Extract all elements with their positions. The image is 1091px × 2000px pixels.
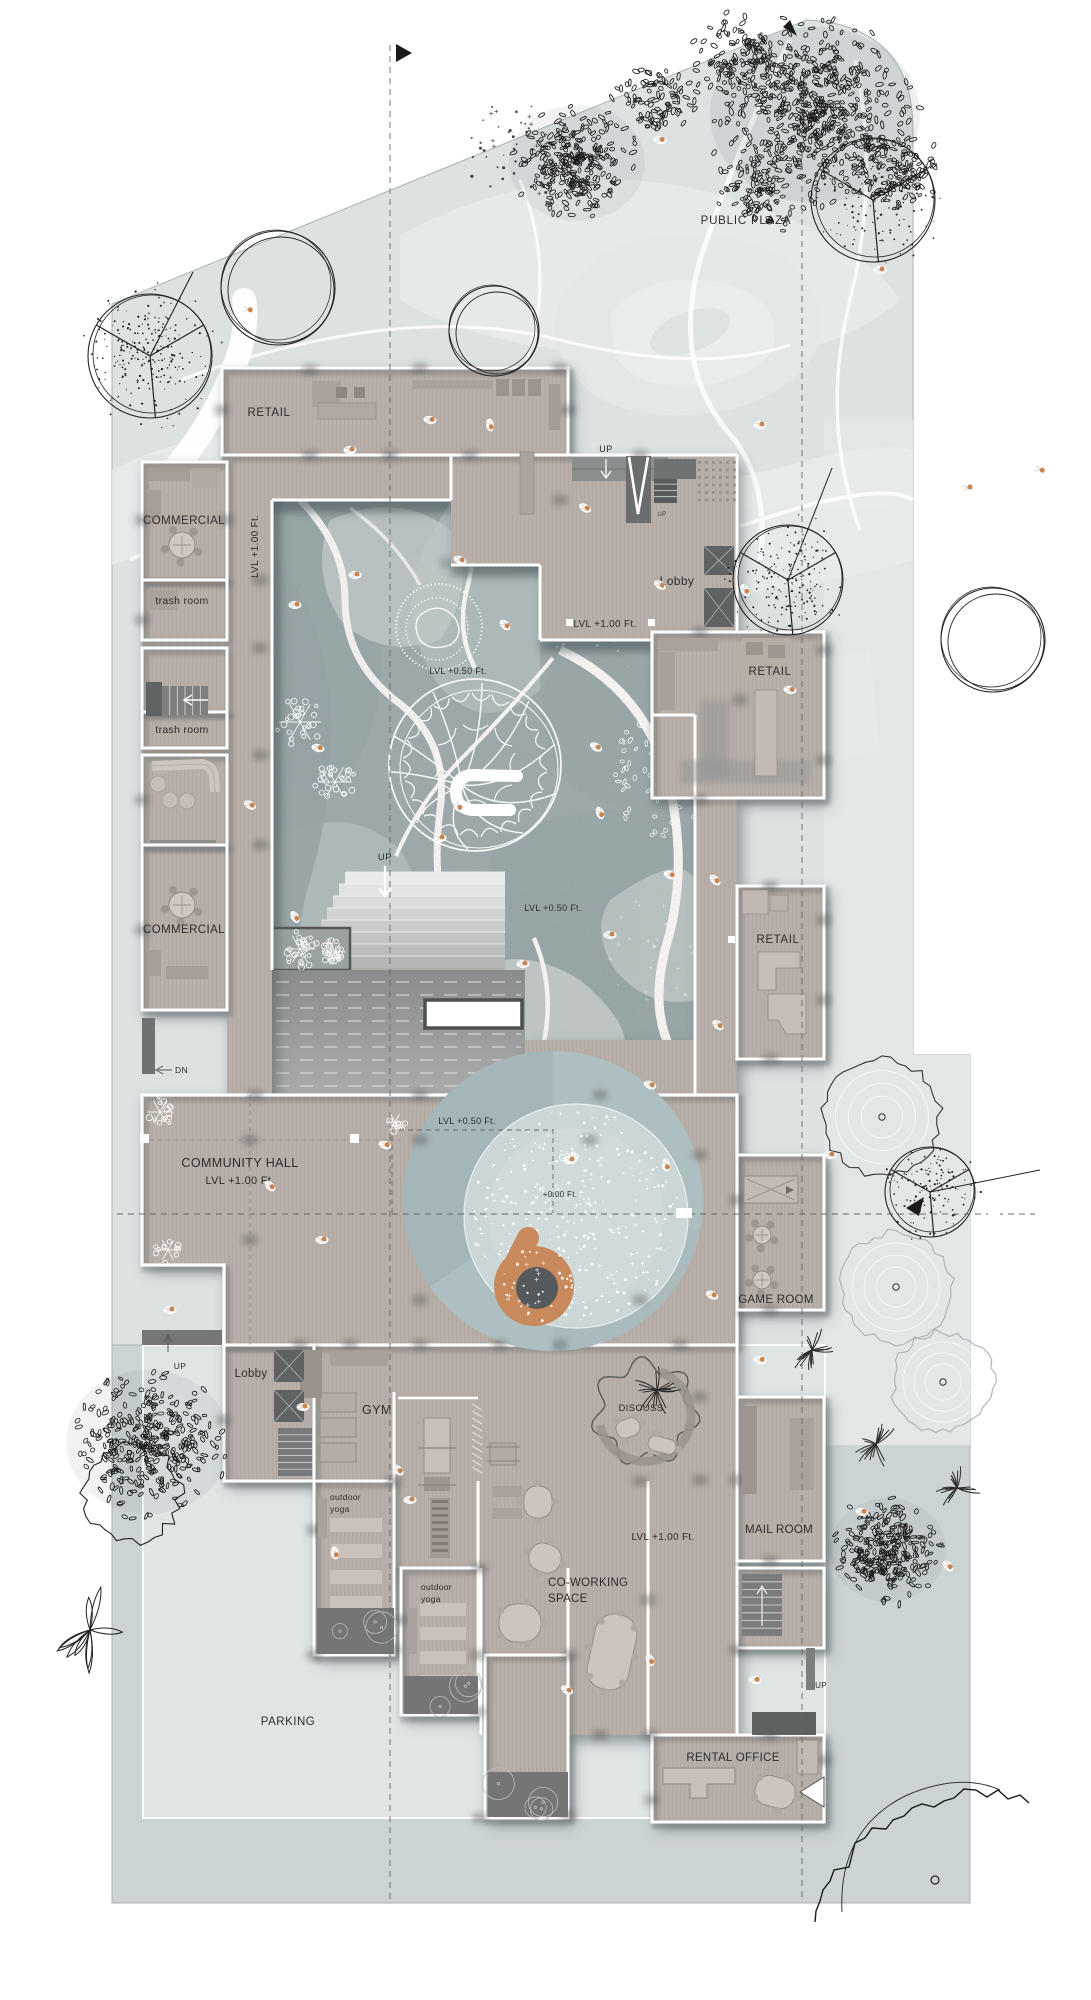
svg-text:RENTAL OFFICE: RENTAL OFFICE [686, 1752, 779, 1764]
svg-text:LVL +1.00 Ft.: LVL +1.00 Ft. [250, 515, 261, 578]
svg-text:LVL +0.50 Ft.: LVL +0.50 Ft. [524, 903, 581, 913]
svg-text:COMMUNITY HALL: COMMUNITY HALL [181, 1156, 298, 1170]
svg-text:UP: UP [658, 512, 667, 518]
svg-text:RETAIL: RETAIL [247, 407, 290, 419]
svg-text:outdoor: outdoor [330, 1492, 361, 1502]
svg-text:LVL +0.50 Ft.: LVL +0.50 Ft. [438, 1116, 495, 1126]
svg-text:LVL +1.00 Ft.: LVL +1.00 Ft. [573, 619, 636, 630]
svg-text:trash room: trash room [155, 595, 208, 607]
svg-text:DN: DN [175, 1065, 188, 1075]
svg-text:GYM: GYM [362, 1403, 392, 1417]
svg-text:yoga: yoga [421, 1594, 441, 1604]
svg-text:UP: UP [174, 1361, 187, 1371]
svg-text:LVL +1.00 Ft.: LVL +1.00 Ft. [205, 1175, 274, 1187]
svg-text:RETAIL: RETAIL [756, 934, 799, 946]
svg-text:SPACE: SPACE [548, 1593, 588, 1605]
svg-text:+0.00 Ft.: +0.00 Ft. [543, 1190, 578, 1199]
svg-text:RETAIL: RETAIL [748, 666, 791, 678]
svg-text:UP: UP [599, 444, 613, 454]
svg-text:LVL +1.00 Ft.: LVL +1.00 Ft. [631, 1532, 694, 1543]
svg-text:MAIL ROOM: MAIL ROOM [745, 1524, 813, 1536]
svg-text:CO-WORKING: CO-WORKING [548, 1577, 628, 1589]
svg-text:PUBLIC PLAZA: PUBLIC PLAZA [701, 215, 792, 227]
svg-text:PARKING: PARKING [261, 1716, 315, 1728]
svg-text:COMMERCIAL: COMMERCIAL [143, 515, 225, 527]
svg-text:LVL +0.50 Ft.: LVL +0.50 Ft. [429, 666, 486, 676]
svg-text:COMMERCIAL: COMMERCIAL [143, 924, 225, 936]
svg-text:trash room: trash room [155, 724, 208, 736]
svg-text:yoga: yoga [330, 1504, 350, 1514]
svg-text:outdoor: outdoor [421, 1582, 452, 1592]
svg-text:Lobby: Lobby [235, 1368, 268, 1380]
svg-text:UP: UP [815, 1681, 827, 1690]
